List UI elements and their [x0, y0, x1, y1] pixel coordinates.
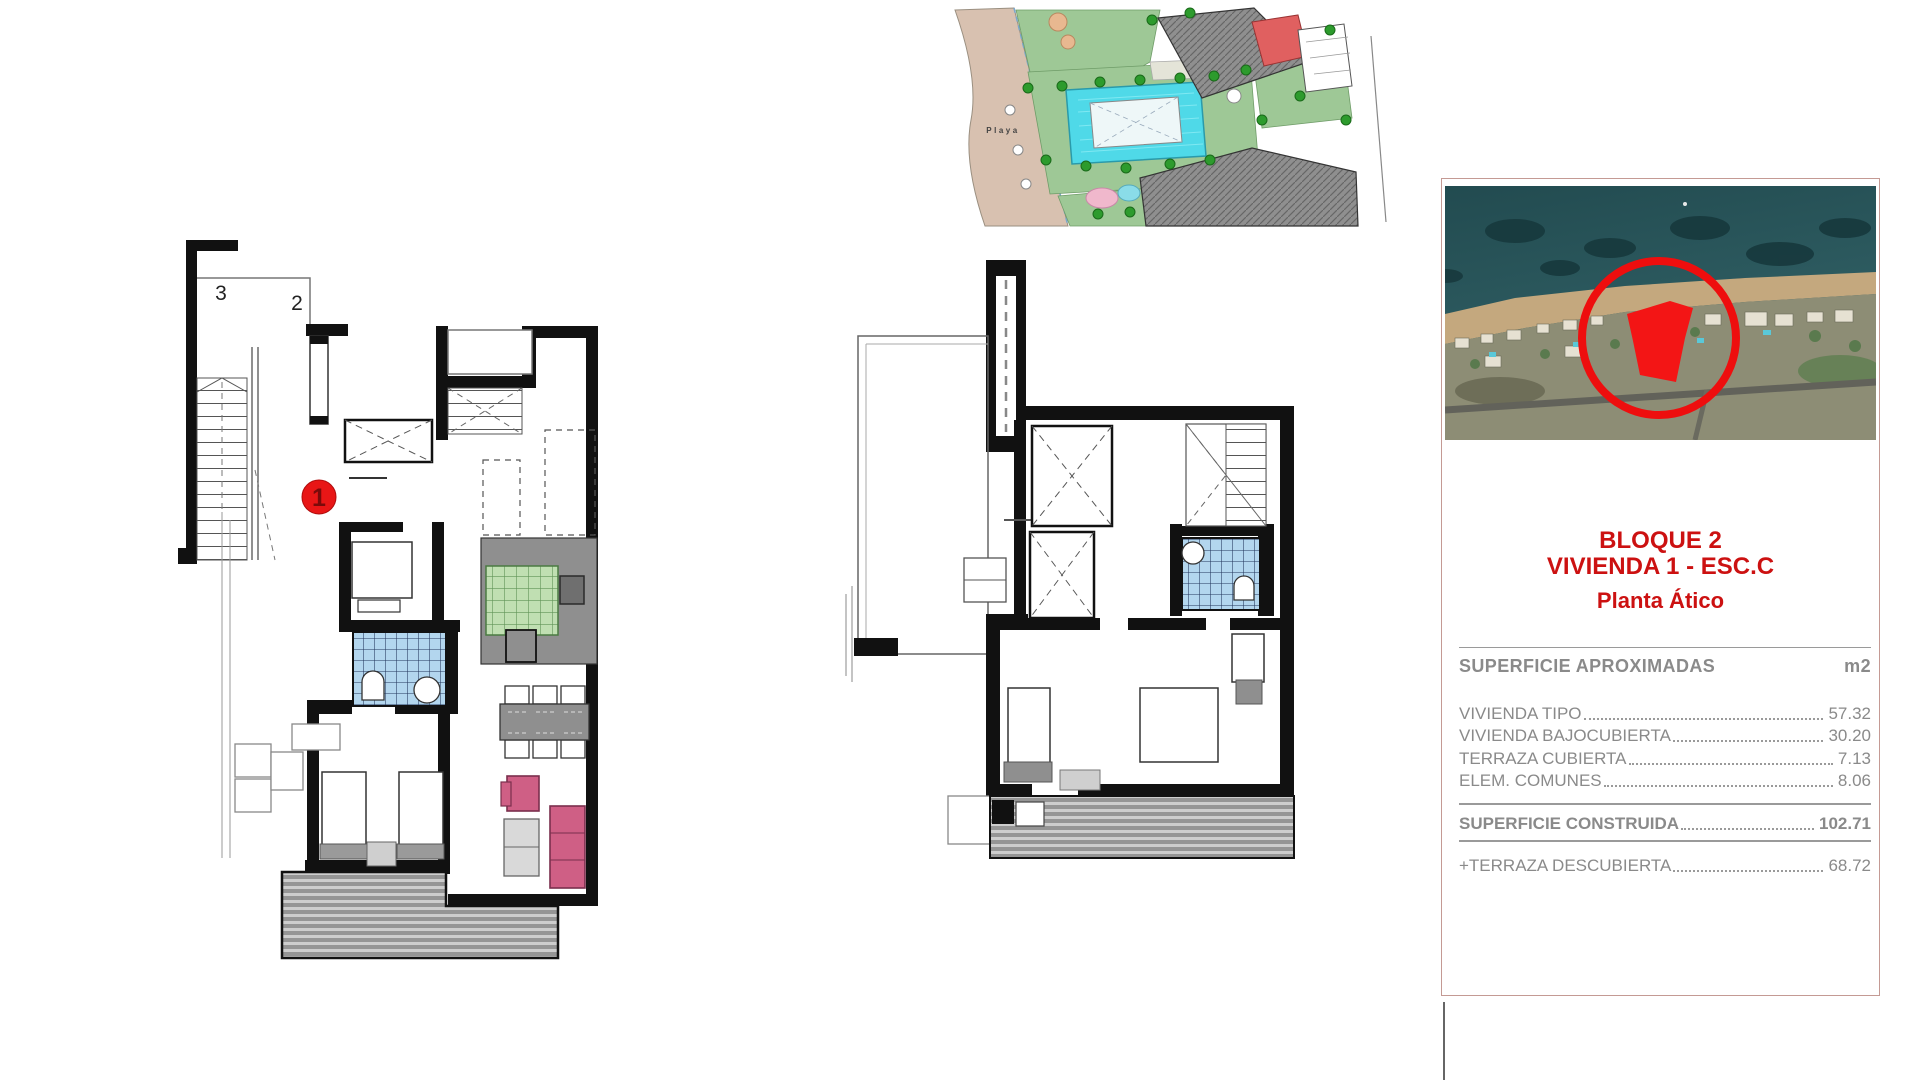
- aerial-photo: [1445, 186, 1876, 440]
- area-row-label: TERRAZA CUBIERTA: [1459, 749, 1627, 769]
- kitchen: [481, 430, 597, 664]
- surface-rows: VIVIENDA TIPO57.32VIVIENDA BAJOCUBIERTA3…: [1459, 701, 1871, 791]
- stair-label-2: 2: [291, 292, 303, 315]
- surface-extra-row: +TERRAZA DESCUBIERTA 68.72: [1459, 854, 1871, 877]
- unit-stair-2: [1186, 424, 1266, 526]
- panel-titles: BLOQUE 2 VIVIENDA 1 - ESC.C Planta Ático: [1442, 528, 1879, 613]
- plan-sheet: Playa: [0, 0, 1920, 1080]
- area-row: ELEM. COMUNES8.06: [1459, 769, 1871, 792]
- page-edge-line: [1443, 1002, 1445, 1080]
- area-row-label: VIVIENDA TIPO: [1459, 704, 1582, 724]
- dot-leader: [1584, 718, 1824, 720]
- extra-value: 68.72: [1828, 856, 1871, 876]
- dot-leader: [1604, 785, 1833, 787]
- unit-stair: [448, 388, 522, 434]
- spa-pool: [1118, 185, 1140, 201]
- info-panel: BLOQUE 2 VIVIENDA 1 - ESC.C Planta Ático…: [1441, 178, 1880, 996]
- dining-set: [500, 686, 589, 758]
- extra-label: +TERRAZA DESCUBIERTA: [1459, 856, 1671, 876]
- terrace-2: [948, 796, 1294, 858]
- terrace: [282, 872, 558, 958]
- dot-leader: [1673, 870, 1823, 872]
- surface-table: SUPERFICIE APROXIMADAS m2 VIVIENDA TIPO5…: [1459, 647, 1871, 876]
- area-row-value: 57.32: [1828, 704, 1871, 724]
- area-row-label: ELEM. COMUNES: [1459, 771, 1602, 791]
- stair-label-3: 3: [215, 282, 227, 305]
- bathroom: [353, 632, 446, 706]
- title-bloque: BLOQUE 2: [1442, 528, 1879, 554]
- dot-leader: [1673, 740, 1824, 742]
- area-row-value: 8.06: [1838, 771, 1871, 791]
- dot-leader: [1681, 828, 1814, 830]
- stairwell: [178, 240, 310, 564]
- toilet-icon: [362, 671, 384, 700]
- lounge: [501, 776, 585, 888]
- floor-plan-bajocubierta: [846, 260, 1294, 858]
- small-bedroom: [352, 542, 412, 612]
- surface-table-header: SUPERFICIE APROXIMADAS m2: [1459, 648, 1871, 677]
- svg-text:1: 1: [312, 484, 326, 512]
- balcony-outline: [448, 330, 532, 374]
- area-row: VIVIENDA TIPO57.32: [1459, 701, 1871, 724]
- total-label: SUPERFICIE CONSTRUIDA: [1459, 814, 1679, 834]
- surface-header-unit: m2: [1844, 656, 1871, 677]
- toilet-icon: [1234, 576, 1254, 600]
- area-row: VIVIENDA BAJOCUBIERTA30.20: [1459, 724, 1871, 747]
- sink-icon: [414, 677, 440, 703]
- boat-dot: [1683, 202, 1687, 206]
- open-terrace: [846, 336, 1006, 682]
- pool: [1066, 82, 1206, 164]
- master-bedroom: [320, 772, 444, 866]
- surface-header-label: SUPERFICIE APROXIMADAS: [1459, 656, 1715, 677]
- kids-pool: [1086, 188, 1118, 208]
- closet: [345, 420, 432, 462]
- bedrooms-2: [1004, 634, 1264, 790]
- beach-label: Playa: [986, 126, 1019, 135]
- total-value: 102.71: [1819, 814, 1871, 834]
- area-row-value: 30.20: [1828, 726, 1871, 746]
- unit-marker: 1: [302, 480, 336, 514]
- site-plan: Playa: [955, 8, 1386, 226]
- sink-icon: [1182, 542, 1204, 564]
- area-row-value: 7.13: [1838, 749, 1871, 769]
- dot-leader: [1629, 763, 1833, 765]
- closet-mid: [1030, 532, 1094, 618]
- area-row: TERRAZA CUBIERTA7.13: [1459, 746, 1871, 769]
- bathroom-2: [1182, 538, 1260, 610]
- title-planta: Planta Ático: [1442, 589, 1879, 613]
- surface-total-row: SUPERFICIE CONSTRUIDA 102.71: [1459, 811, 1871, 834]
- boundary-line: [1371, 36, 1386, 222]
- title-vivienda: VIVIENDA 1 - ESC.C: [1442, 554, 1879, 580]
- floor-plan-atico: 3 2: [178, 240, 598, 958]
- area-row-label: VIVIENDA BAJOCUBIERTA: [1459, 726, 1671, 746]
- closet-top: [1032, 426, 1112, 526]
